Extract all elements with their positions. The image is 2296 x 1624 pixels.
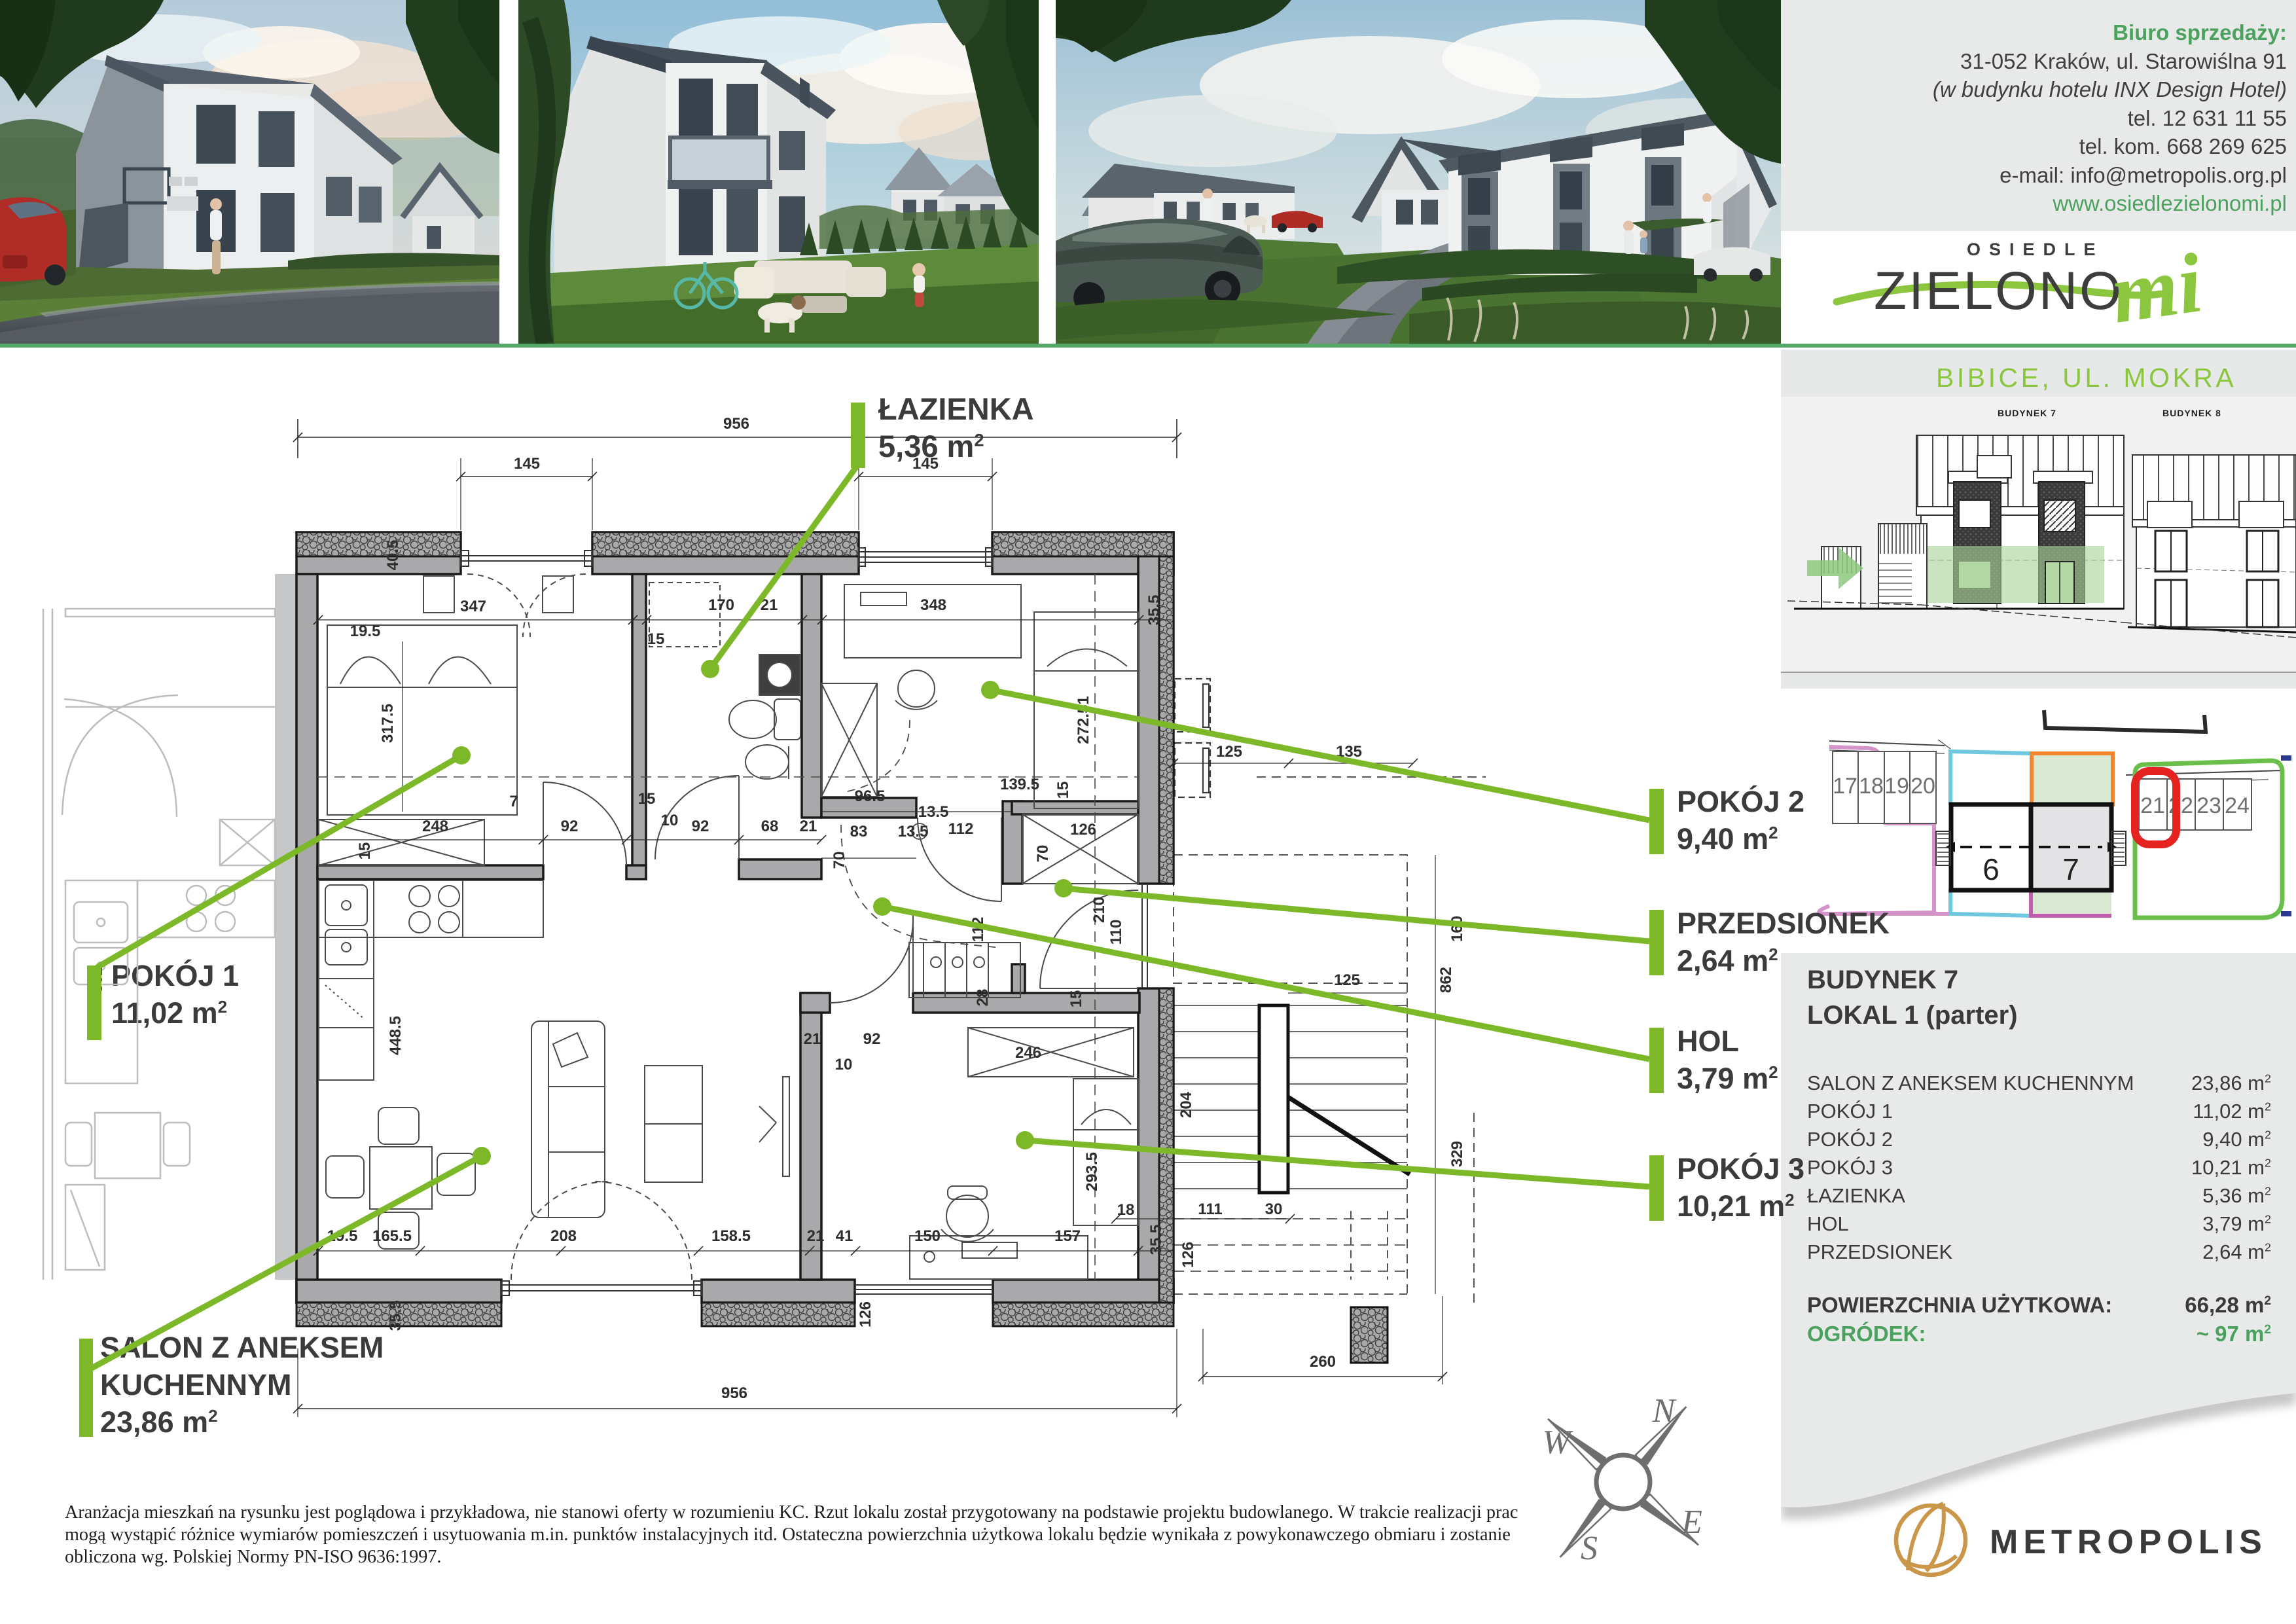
svg-text:126: 126	[857, 1301, 874, 1327]
svg-text:10: 10	[835, 1056, 853, 1074]
svg-text:246: 246	[1015, 1044, 1041, 1062]
svg-text:293.5: 293.5	[1083, 1152, 1101, 1191]
svg-text:N: N	[1652, 1392, 1677, 1430]
svg-text:150: 150	[914, 1227, 941, 1245]
svg-text:92: 92	[863, 1030, 881, 1048]
svg-text:272.51: 272.51	[1075, 696, 1092, 744]
svg-text:126: 126	[1070, 821, 1096, 839]
svg-text:68: 68	[761, 818, 779, 835]
svg-text:112: 112	[948, 820, 974, 838]
svg-text:260: 260	[1310, 1353, 1336, 1371]
svg-text:7: 7	[509, 793, 518, 810]
svg-text:41: 41	[836, 1227, 853, 1245]
svg-text:210: 210	[1090, 897, 1108, 923]
svg-text:13.5: 13.5	[898, 823, 929, 840]
svg-text:METROPOLIS: METROPOLIS	[1990, 1523, 2267, 1561]
svg-text:15: 15	[1054, 782, 1072, 799]
svg-text:111: 111	[1198, 1200, 1222, 1218]
svg-text:158.5: 158.5	[711, 1227, 751, 1245]
svg-text:145: 145	[912, 455, 939, 473]
svg-text:70: 70	[831, 852, 848, 869]
svg-text:W: W	[1542, 1424, 1573, 1461]
svg-text:110: 110	[1107, 920, 1125, 945]
svg-text:347: 347	[460, 598, 486, 615]
svg-text:21: 21	[800, 818, 817, 835]
svg-text:35.5: 35.5	[1147, 1225, 1165, 1255]
svg-text:165.5: 165.5	[372, 1227, 412, 1245]
svg-text:448.5: 448.5	[387, 1016, 404, 1055]
svg-text:208: 208	[550, 1227, 577, 1245]
svg-text:30: 30	[1265, 1200, 1283, 1218]
svg-text:92: 92	[561, 818, 579, 835]
svg-text:15: 15	[1067, 990, 1085, 1008]
svg-text:83: 83	[850, 823, 868, 840]
svg-text:21: 21	[807, 1227, 825, 1245]
svg-text:125: 125	[1334, 971, 1360, 989]
svg-text:35.5: 35.5	[1145, 595, 1163, 626]
svg-text:956: 956	[721, 1384, 747, 1402]
svg-text:204: 204	[1177, 1091, 1195, 1118]
svg-text:10: 10	[661, 812, 679, 829]
svg-text:35.5: 35.5	[387, 1301, 404, 1331]
svg-text:13.5: 13.5	[918, 803, 949, 821]
svg-text:329: 329	[1448, 1141, 1466, 1167]
svg-text:248: 248	[422, 818, 448, 835]
svg-text:15: 15	[647, 630, 665, 648]
svg-text:170: 170	[708, 596, 734, 614]
svg-text:348: 348	[920, 596, 946, 614]
svg-text:70: 70	[1034, 845, 1052, 863]
svg-text:92: 92	[692, 818, 709, 835]
svg-text:18: 18	[1117, 1201, 1135, 1219]
svg-text:157: 157	[1054, 1227, 1081, 1245]
svg-text:862: 862	[1437, 967, 1455, 993]
svg-text:15: 15	[638, 790, 656, 808]
svg-text:E: E	[1681, 1504, 1702, 1541]
svg-text:125: 125	[1216, 743, 1242, 761]
svg-text:96.5: 96.5	[855, 787, 886, 805]
svg-text:S: S	[1581, 1530, 1598, 1567]
svg-text:956: 956	[723, 415, 749, 433]
svg-text:317.5: 317.5	[379, 704, 397, 743]
svg-text:40.5: 40.5	[384, 540, 402, 571]
svg-text:15: 15	[356, 842, 374, 860]
svg-text:21: 21	[804, 1030, 821, 1048]
svg-text:139.5: 139.5	[1000, 776, 1039, 793]
svg-text:160: 160	[1448, 916, 1466, 942]
svg-text:126: 126	[1179, 1242, 1197, 1268]
svg-text:19.5: 19.5	[350, 623, 381, 640]
svg-text:28: 28	[974, 989, 992, 1007]
svg-text:145: 145	[514, 455, 540, 473]
